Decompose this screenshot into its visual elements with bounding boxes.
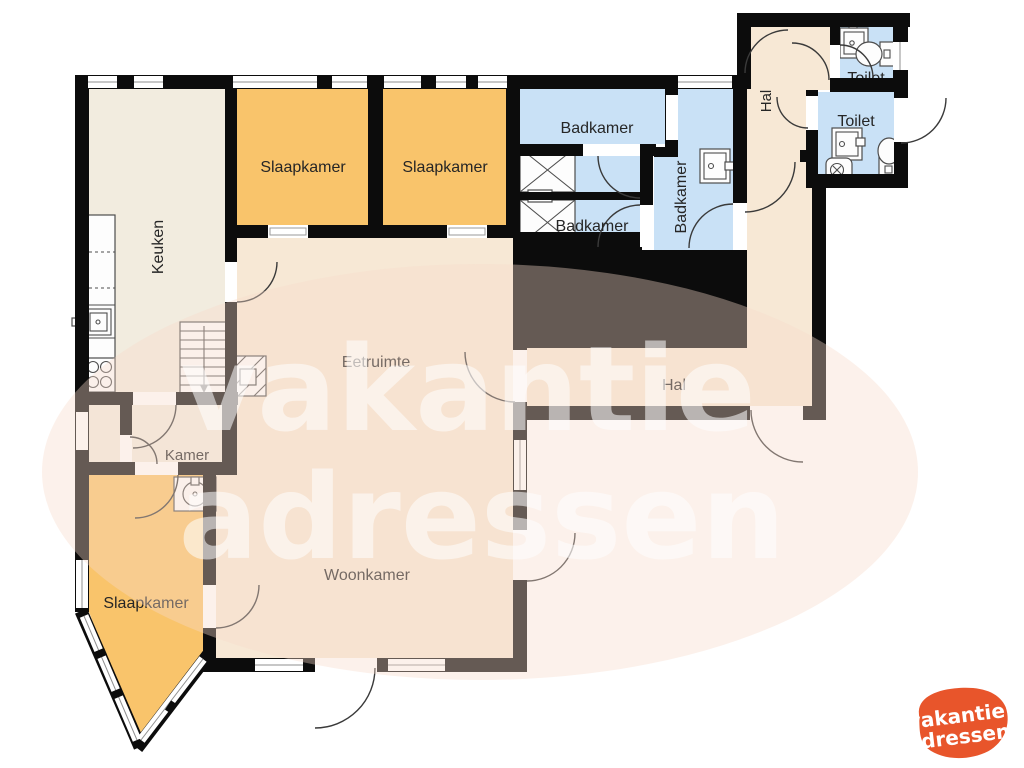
room-label-toilet-right: Toilet — [837, 113, 875, 130]
vakantieadressen-logo: vakantie adressen — [904, 683, 1012, 762]
room-label-badkamer-right: Badkamer — [673, 160, 690, 234]
bathroom-sink-icon — [700, 149, 735, 183]
door-opening — [733, 203, 747, 248]
door-opening — [666, 95, 678, 140]
room-label-badkamer-left: Badkamer — [556, 218, 630, 235]
door-opening — [268, 225, 308, 238]
room-label-slaapkamer-1: Slaapkamer — [260, 159, 346, 176]
door-opening — [640, 205, 653, 247]
room-label-hal-annex: Hal — [758, 90, 775, 113]
door-arc — [315, 668, 375, 728]
watermark-line1: vakantie — [180, 320, 756, 458]
door-opening — [894, 98, 908, 142]
bathroom-sink-icon — [832, 128, 865, 160]
floorplan-page: Toilet — [0, 0, 1024, 768]
watermark-line2: adressen — [179, 448, 786, 586]
door-opening — [806, 96, 818, 130]
door-opening — [447, 225, 487, 238]
door-opening — [583, 144, 640, 156]
room-label-badkamer-top: Badkamer — [561, 120, 635, 137]
watermark: vakantie adressen — [42, 264, 918, 680]
floorplan-drawing: Toilet — [0, 0, 1024, 768]
room-label-slaapkamer-2: Slaapkamer — [402, 159, 488, 176]
room-label-keuken: Keuken — [150, 220, 167, 274]
room-slaapkamer-1 — [237, 89, 368, 225]
room-slaapkamer-2 — [383, 89, 506, 225]
door-opening — [225, 262, 237, 302]
door-opening — [830, 45, 840, 78]
